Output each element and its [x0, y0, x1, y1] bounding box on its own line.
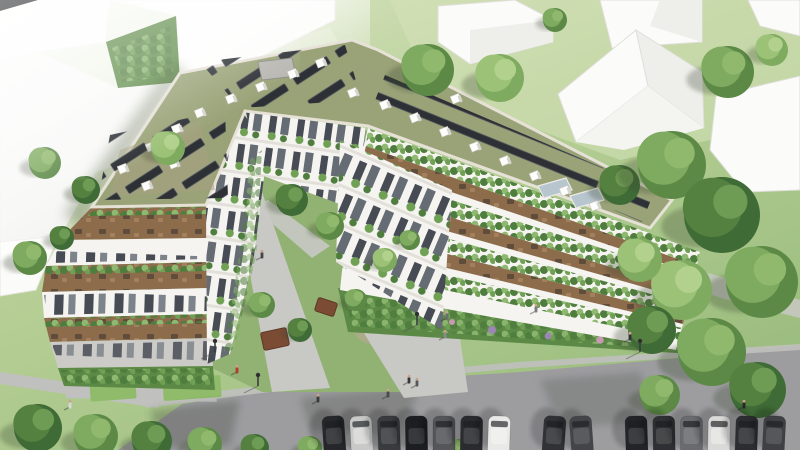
ground-windows [52, 341, 211, 365]
base-hedge-plants [60, 368, 213, 386]
render-viewport [0, 0, 800, 450]
aerial-render [0, 0, 800, 450]
window-row [44, 291, 208, 315]
sun-glow-overlay [0, 0, 300, 180]
cars-layer [308, 406, 786, 450]
